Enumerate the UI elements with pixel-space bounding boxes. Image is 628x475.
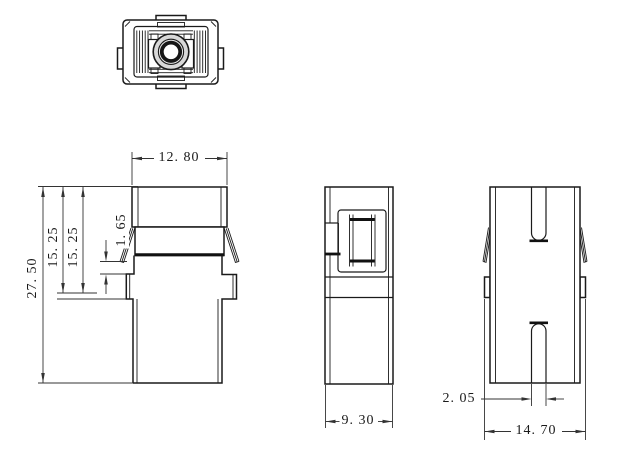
dim-upper-height-a: 15. 25 bbox=[47, 225, 61, 270]
front-top-section bbox=[132, 187, 227, 227]
front-right-profile bbox=[133, 256, 237, 384]
dim-latch-gap: 1. 65 bbox=[115, 212, 129, 249]
top-view bbox=[118, 16, 224, 89]
dim-flange-width: 14. 70 bbox=[514, 424, 559, 438]
drawing-svg bbox=[0, 0, 628, 475]
dim-front-width: 12. 80 bbox=[157, 151, 202, 165]
back-left-flange-tab bbox=[485, 277, 491, 298]
dim-overall-height: 27. 50 bbox=[26, 256, 40, 301]
back-outline bbox=[490, 187, 580, 383]
right-spring-arm bbox=[224, 228, 239, 263]
dim-upper-height-b: 15. 25 bbox=[67, 225, 81, 270]
back-view bbox=[483, 187, 587, 383]
side-outline bbox=[325, 187, 393, 384]
back-right-flange-tab bbox=[580, 277, 586, 298]
side-view bbox=[325, 187, 393, 384]
dim-side-depth: 9. 30 bbox=[340, 414, 377, 428]
ferrule-circles bbox=[153, 34, 189, 70]
front-view bbox=[120, 187, 239, 383]
technical-drawing-canvas: 12. 80 27. 50 15. 25 15. 25 1. 65 9. 30 … bbox=[0, 0, 628, 475]
dim-slot-width: 2. 05 bbox=[441, 392, 478, 406]
front-cap-section bbox=[135, 227, 224, 256]
